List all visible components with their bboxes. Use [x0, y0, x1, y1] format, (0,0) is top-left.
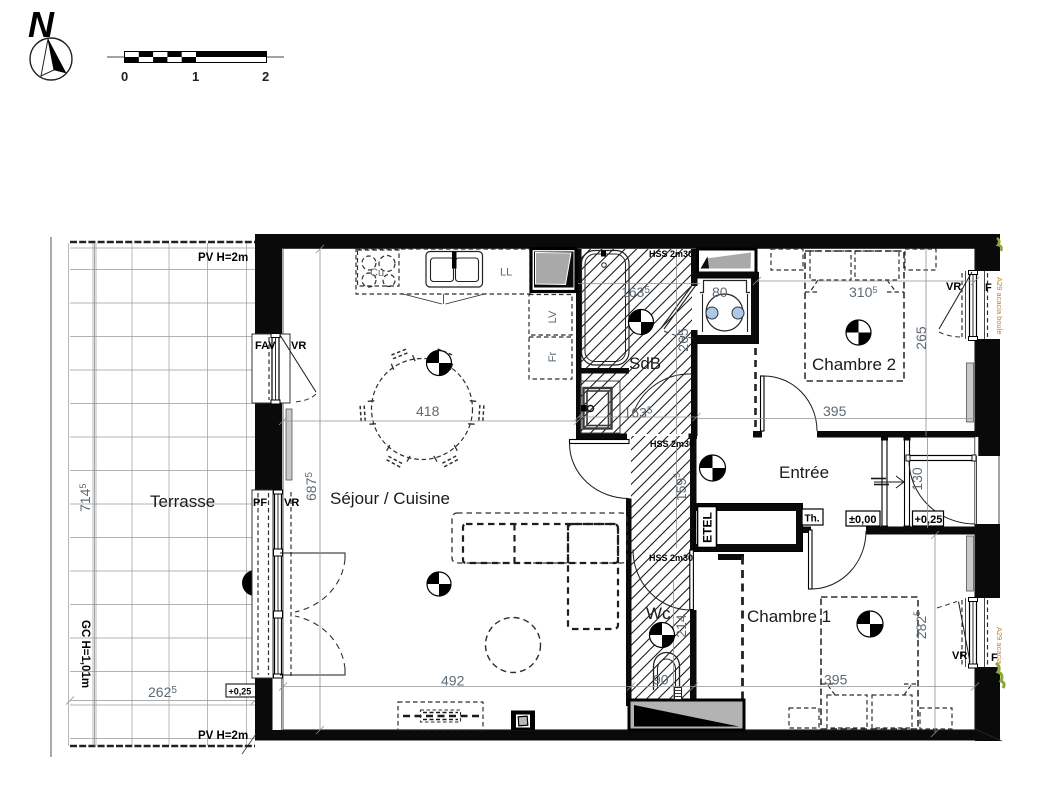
svg-text:418: 418 [416, 403, 440, 419]
svg-text:2: 2 [262, 69, 269, 84]
svg-text:Chambre 2: Chambre 2 [812, 355, 896, 374]
svg-text:F: F [985, 282, 992, 294]
svg-text:VR: VR [946, 281, 961, 293]
svg-text:265: 265 [675, 328, 691, 352]
svg-text:HSS 2m30: HSS 2m30 [649, 249, 693, 259]
svg-text:90: 90 [653, 672, 669, 688]
svg-text:HSS 2m30: HSS 2m30 [650, 439, 694, 449]
svg-text:Terrasse: Terrasse [150, 492, 215, 511]
svg-text:Chambre 1: Chambre 1 [747, 607, 831, 626]
svg-text:SdB: SdB [629, 354, 661, 373]
svg-text:A29 acacia: A29 acacia [995, 627, 1004, 665]
svg-text:214: 214 [673, 614, 689, 638]
svg-text:ETEL: ETEL [701, 512, 715, 543]
svg-text:HSS 2m30: HSS 2m30 [649, 553, 693, 563]
svg-text:0: 0 [121, 69, 128, 84]
svg-text:Fr: Fr [547, 351, 559, 362]
svg-text:±0,00: ±0,00 [849, 514, 876, 526]
svg-text:+0,25: +0,25 [229, 687, 252, 697]
svg-text:+0,25: +0,25 [915, 514, 943, 526]
svg-text:265: 265 [913, 326, 929, 350]
svg-text:VR: VR [291, 340, 306, 352]
svg-text:FAV: FAV [255, 340, 276, 352]
svg-text:395: 395 [824, 672, 848, 688]
svg-text:Wc: Wc [646, 604, 671, 623]
svg-text:Séjour / Cuisine: Séjour / Cuisine [330, 489, 450, 508]
svg-text:GC H=1,01m: GC H=1,01m [79, 620, 91, 688]
svg-text:Entrée: Entrée [779, 463, 829, 482]
svg-text:395: 395 [823, 403, 847, 419]
svg-text:492: 492 [441, 673, 465, 689]
svg-text:LL: LL [500, 267, 512, 279]
svg-text:N: N [28, 4, 55, 45]
svg-text:VR: VR [952, 650, 967, 662]
svg-text:PV H=2m: PV H=2m [198, 252, 248, 264]
svg-text:1: 1 [192, 69, 199, 84]
svg-text:A29 acacia boule: A29 acacia boule [995, 277, 1004, 335]
svg-text:80: 80 [712, 284, 728, 300]
svg-text:VR: VR [284, 497, 299, 509]
svg-text:PV H=2m: PV H=2m [198, 730, 248, 742]
svg-text:Th.: Th. [805, 514, 820, 525]
svg-text:Cu: Cu [370, 267, 384, 279]
svg-text:LV: LV [547, 310, 559, 323]
svg-text:130: 130 [909, 467, 925, 491]
svg-text:PF: PF [253, 497, 267, 509]
